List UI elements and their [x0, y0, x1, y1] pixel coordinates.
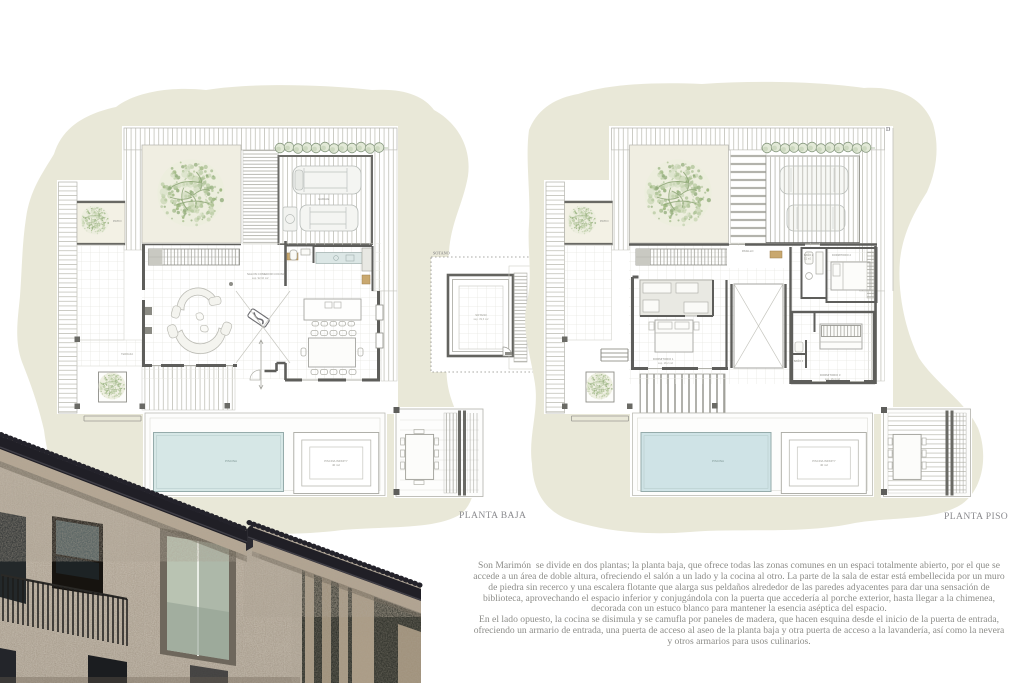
svg-text:D: D: [886, 127, 891, 133]
svg-text:BAÑO 2: BAÑO 2: [804, 254, 814, 257]
svg-text:SOTANO: SOTANO: [433, 251, 450, 256]
svg-text:40 m2: 40 m2: [332, 463, 340, 467]
svg-text:SOTANO: SOTANO: [475, 313, 487, 317]
svg-text:BAÑO 3: BAÑO 3: [794, 360, 804, 363]
svg-text:PLANTA BAJA: PLANTA BAJA: [459, 510, 526, 521]
svg-text:DORMITORIO 3: DORMITORIO 3: [820, 373, 841, 377]
svg-text:PISCINA: PISCINA: [712, 459, 724, 463]
svg-text:PASILLO: PASILLO: [742, 249, 754, 253]
svg-text:PLANTA PISO: PLANTA PISO: [944, 511, 1008, 522]
svg-text:TERRAZA: TERRAZA: [121, 352, 133, 356]
svg-text:PATIO: PATIO: [113, 219, 122, 223]
svg-text:5,2 m2: 5,2 m2: [804, 259, 812, 261]
svg-text:sup. 18,2 m2: sup. 18,2 m2: [658, 361, 674, 365]
svg-text:PISCINA: PISCINA: [225, 459, 237, 463]
svg-text:PATIO: PATIO: [600, 219, 609, 223]
svg-text:GARAJE: GARAJE: [318, 197, 329, 201]
svg-text:DORMITORIO 2: DORMITORIO 2: [832, 253, 852, 257]
svg-text:40 m2: 40 m2: [820, 463, 828, 467]
svg-text:SALON COMEDOR COCINA: SALON COMEDOR COCINA: [247, 272, 285, 276]
svg-text:sup. 92,10 m2: sup. 92,10 m2: [252, 276, 269, 280]
svg-text:DORMITORIO 1: DORMITORIO 1: [653, 357, 674, 361]
svg-text:sup. 39,6 m2: sup. 39,6 m2: [474, 317, 490, 321]
